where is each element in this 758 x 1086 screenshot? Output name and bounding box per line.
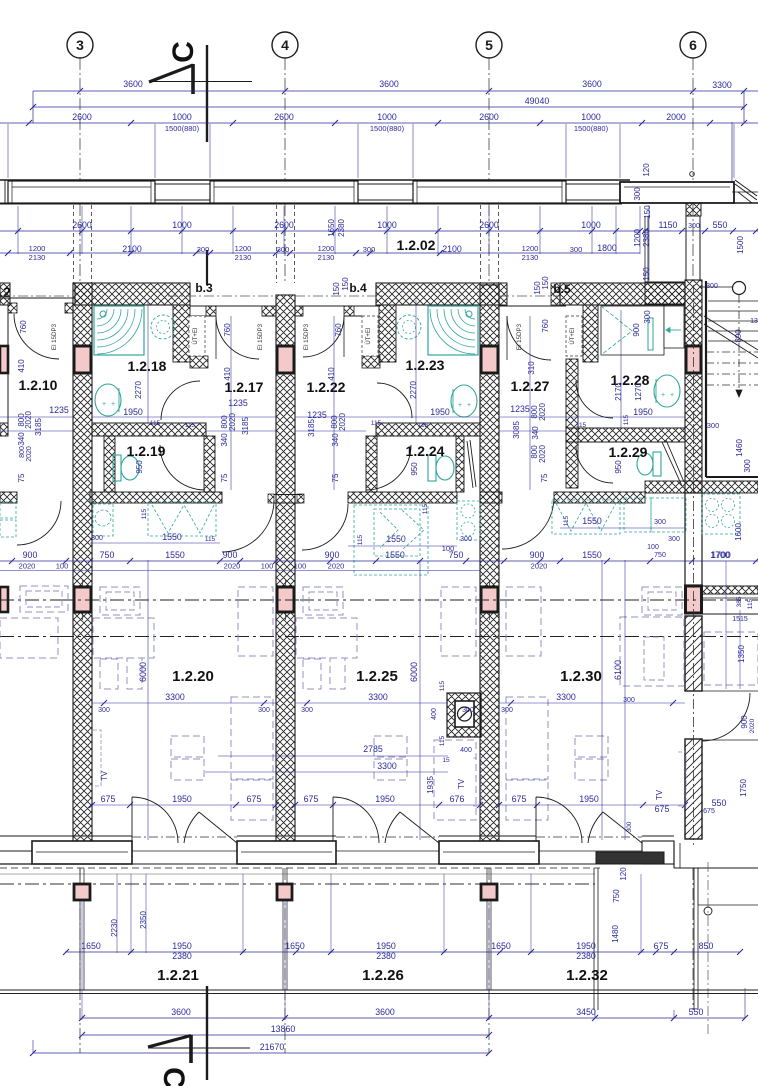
svg-text:675: 675 <box>247 794 262 804</box>
svg-text:400: 400 <box>431 708 438 720</box>
svg-text:900: 900 <box>530 550 545 560</box>
svg-text:410: 410 <box>327 367 336 381</box>
svg-text:1235: 1235 <box>49 405 69 415</box>
svg-text:115: 115 <box>185 422 196 429</box>
svg-text:410: 410 <box>223 367 232 381</box>
svg-text:b.3: b.3 <box>195 281 213 295</box>
svg-text:3085: 3085 <box>512 421 521 439</box>
svg-text:1750: 1750 <box>739 779 748 797</box>
svg-text:1000: 1000 <box>581 112 601 122</box>
svg-text:950: 950 <box>614 460 623 474</box>
svg-text:2130: 2130 <box>235 253 252 262</box>
svg-text:150: 150 <box>642 267 651 281</box>
svg-text:300: 300 <box>258 707 270 714</box>
svg-text:1550: 1550 <box>582 516 602 526</box>
svg-text:2380: 2380 <box>172 951 192 961</box>
svg-text:1500: 1500 <box>736 236 745 254</box>
svg-text:900: 900 <box>223 550 238 560</box>
svg-text:13860: 13860 <box>271 1024 296 1034</box>
svg-text:2600: 2600 <box>72 112 92 122</box>
svg-text:120: 120 <box>642 163 651 177</box>
svg-text:+: + <box>661 392 665 399</box>
svg-text:El 15DP3: El 15DP3 <box>516 323 523 350</box>
svg-text:2020: 2020 <box>26 446 33 462</box>
svg-text:100: 100 <box>56 562 69 571</box>
svg-text:410: 410 <box>17 359 26 373</box>
svg-text:890: 890 <box>734 329 743 343</box>
svg-text:1950: 1950 <box>376 941 396 951</box>
svg-text:1.2.26: 1.2.26 <box>362 967 404 984</box>
svg-text:300: 300 <box>633 187 642 201</box>
svg-text:3300: 3300 <box>368 692 388 702</box>
svg-text:75: 75 <box>331 473 340 482</box>
svg-text:115: 115 <box>422 503 429 514</box>
svg-text:100: 100 <box>261 562 274 571</box>
svg-text:ÚT+EI: ÚT+EI <box>192 327 199 345</box>
svg-text:300: 300 <box>706 283 718 290</box>
svg-text:1500(880): 1500(880) <box>165 124 200 133</box>
svg-text:1.2.24: 1.2.24 <box>406 443 445 459</box>
svg-text:+: + <box>111 401 115 408</box>
svg-text:2600: 2600 <box>479 112 499 122</box>
svg-text:2230: 2230 <box>110 919 119 937</box>
svg-text:1650: 1650 <box>285 941 305 951</box>
svg-text:1000: 1000 <box>581 220 601 230</box>
svg-text:900: 900 <box>325 550 340 560</box>
svg-text:1000: 1000 <box>172 220 192 230</box>
svg-text:1550: 1550 <box>165 550 185 560</box>
svg-text:C: C <box>157 1067 190 1086</box>
svg-text:115: 115 <box>576 422 587 429</box>
svg-text:115: 115 <box>418 422 429 429</box>
svg-text:300: 300 <box>98 707 110 714</box>
svg-text:6000: 6000 <box>409 662 419 682</box>
svg-text:115: 115 <box>357 534 364 545</box>
svg-text:115: 115 <box>563 515 570 526</box>
svg-text:El 15DP3: El 15DP3 <box>51 323 58 350</box>
svg-text:49040: 49040 <box>525 96 550 106</box>
svg-text:300: 300 <box>363 245 376 254</box>
svg-text:2020: 2020 <box>224 562 241 571</box>
svg-text:675: 675 <box>703 808 715 815</box>
svg-text:3300: 3300 <box>377 761 397 771</box>
svg-text:ÚT+EI: ÚT+EI <box>569 327 576 345</box>
svg-text:2130: 2130 <box>29 253 46 262</box>
svg-text:100: 100 <box>442 544 455 553</box>
svg-text:1200: 1200 <box>318 244 335 253</box>
svg-text:300: 300 <box>91 535 103 542</box>
svg-text:4: 4 <box>281 37 289 53</box>
svg-text:2020: 2020 <box>749 718 756 733</box>
svg-text:340: 340 <box>331 433 340 447</box>
svg-text:1350: 1350 <box>737 645 746 663</box>
svg-text:3450: 3450 <box>576 1007 596 1017</box>
svg-text:2020: 2020 <box>328 562 345 571</box>
svg-text:675: 675 <box>304 794 319 804</box>
svg-text:TV: TV <box>457 778 466 789</box>
svg-text:6100: 6100 <box>613 660 623 680</box>
svg-text:1.2.20: 1.2.20 <box>172 668 214 685</box>
svg-text:1200: 1200 <box>633 229 642 247</box>
svg-text:1950: 1950 <box>172 941 192 951</box>
svg-text:300: 300 <box>623 697 635 704</box>
svg-text:3600: 3600 <box>582 79 602 89</box>
svg-text:1235: 1235 <box>510 404 530 414</box>
svg-text:1650: 1650 <box>491 941 511 951</box>
svg-text:1950: 1950 <box>430 407 450 417</box>
svg-text:675: 675 <box>655 804 670 814</box>
svg-text:150: 150 <box>341 277 350 291</box>
svg-text:310: 310 <box>527 361 536 375</box>
svg-text:1.2.18: 1.2.18 <box>128 358 167 374</box>
svg-text:+: + <box>670 392 674 399</box>
svg-text:2130: 2130 <box>318 253 335 262</box>
svg-text:750: 750 <box>100 550 115 560</box>
svg-text:300: 300 <box>743 459 752 473</box>
svg-text:b.5: b.5 <box>553 282 571 296</box>
svg-text:TV: TV <box>100 770 109 781</box>
svg-text:100: 100 <box>647 544 659 551</box>
svg-text:115: 115 <box>747 598 754 609</box>
svg-text:2380: 2380 <box>642 229 651 247</box>
svg-text:1950: 1950 <box>633 407 653 417</box>
svg-text:3300: 3300 <box>165 692 185 702</box>
svg-text:2000: 2000 <box>666 112 686 122</box>
svg-text:3600: 3600 <box>171 1007 191 1017</box>
svg-text:1950: 1950 <box>576 941 596 951</box>
svg-text:1.2.19: 1.2.19 <box>127 443 166 459</box>
svg-text:115: 115 <box>205 536 216 543</box>
svg-text:1550: 1550 <box>582 550 602 560</box>
svg-text:1.2.02: 1.2.02 <box>397 237 436 253</box>
svg-text:+: + <box>458 402 462 409</box>
svg-text:675: 675 <box>654 941 669 951</box>
svg-text:300: 300 <box>570 245 583 254</box>
svg-text:1235: 1235 <box>307 410 327 420</box>
svg-text:3600: 3600 <box>379 79 399 89</box>
svg-text:400: 400 <box>460 747 472 754</box>
svg-text:300: 300 <box>668 536 680 543</box>
svg-text:760: 760 <box>541 319 550 333</box>
svg-text:ÚT+EI: ÚT+EI <box>365 327 372 345</box>
svg-text:150: 150 <box>541 276 550 290</box>
svg-text:1600: 1600 <box>734 523 743 541</box>
svg-text:2785: 2785 <box>363 744 383 754</box>
svg-text:1.2.21: 1.2.21 <box>157 967 199 984</box>
svg-text:2270: 2270 <box>134 381 143 399</box>
svg-text:150: 150 <box>643 205 652 219</box>
svg-text:1500(880): 1500(880) <box>370 124 405 133</box>
svg-text:15: 15 <box>442 757 450 764</box>
svg-text:675: 675 <box>101 794 116 804</box>
svg-text:550: 550 <box>712 798 727 808</box>
svg-text:2380: 2380 <box>337 219 346 237</box>
svg-text:3600: 3600 <box>375 1007 395 1017</box>
svg-text:300: 300 <box>688 223 700 230</box>
svg-text:1200: 1200 <box>29 244 46 253</box>
svg-text:2020: 2020 <box>338 413 347 431</box>
svg-text:1.2.32: 1.2.32 <box>566 967 608 984</box>
svg-text:1460: 1460 <box>735 439 744 457</box>
svg-text:2020: 2020 <box>531 562 548 571</box>
svg-text:100: 100 <box>294 562 307 571</box>
svg-text:1650: 1650 <box>81 941 101 951</box>
svg-text:+: + <box>467 402 471 409</box>
svg-text:750: 750 <box>612 889 621 903</box>
svg-text:75: 75 <box>17 473 26 482</box>
svg-text:1.2.25: 1.2.25 <box>356 668 398 685</box>
svg-text:900: 900 <box>632 323 641 337</box>
svg-text:300: 300 <box>301 707 313 714</box>
svg-text:760: 760 <box>334 323 343 337</box>
svg-text:6000: 6000 <box>138 662 148 682</box>
svg-text:2020: 2020 <box>228 413 237 431</box>
svg-text:3185: 3185 <box>241 417 250 435</box>
svg-text:TV: TV <box>655 789 664 800</box>
svg-text:1.2.23: 1.2.23 <box>406 357 445 373</box>
svg-text:800: 800 <box>19 446 26 458</box>
svg-text:1200: 1200 <box>235 244 252 253</box>
svg-text:1950: 1950 <box>123 407 143 417</box>
svg-text:385: 385 <box>736 596 743 607</box>
svg-text:2130: 2130 <box>522 253 539 262</box>
svg-text:3300: 3300 <box>556 692 576 702</box>
svg-text:2100: 2100 <box>122 244 142 254</box>
svg-text:340: 340 <box>17 432 26 446</box>
svg-text:300: 300 <box>460 536 472 543</box>
svg-text:2600: 2600 <box>72 220 92 230</box>
svg-text:1000: 1000 <box>377 220 397 230</box>
svg-text:550: 550 <box>713 220 728 230</box>
svg-text:550: 550 <box>689 1007 704 1017</box>
svg-text:115: 115 <box>623 414 630 425</box>
svg-text:1650: 1650 <box>327 219 336 237</box>
svg-text:300: 300 <box>643 310 652 324</box>
svg-text:3300: 3300 <box>712 80 732 90</box>
svg-text:1700: 1700 <box>711 550 731 560</box>
svg-text:300: 300 <box>197 245 210 254</box>
svg-text:300: 300 <box>654 519 666 526</box>
svg-text:1480: 1480 <box>611 925 620 943</box>
svg-text:300: 300 <box>707 421 720 430</box>
svg-text:300: 300 <box>277 245 290 254</box>
svg-text:760: 760 <box>223 323 232 337</box>
svg-text:1950: 1950 <box>579 794 599 804</box>
svg-text:3185: 3185 <box>34 418 43 436</box>
svg-text:1550: 1550 <box>385 550 405 560</box>
svg-text:750: 750 <box>654 552 666 559</box>
svg-text:115: 115 <box>150 420 161 427</box>
svg-text:676: 676 <box>450 794 465 804</box>
svg-text:900: 900 <box>23 550 38 560</box>
svg-text:2020: 2020 <box>24 411 33 429</box>
svg-text:1800: 1800 <box>597 243 617 253</box>
svg-text:6: 6 <box>689 37 697 53</box>
svg-text:1550: 1550 <box>386 534 406 544</box>
svg-text:1935: 1935 <box>426 776 435 794</box>
svg-text:2020: 2020 <box>538 445 547 463</box>
svg-text:13: 13 <box>750 318 758 325</box>
svg-text:2350: 2350 <box>139 911 148 929</box>
svg-text:115: 115 <box>371 420 382 427</box>
svg-text:75: 75 <box>220 473 229 482</box>
svg-text:b.4: b.4 <box>349 281 367 295</box>
svg-text:1200: 1200 <box>522 244 539 253</box>
svg-text:1270: 1270 <box>634 383 643 401</box>
svg-text:1.2.10: 1.2.10 <box>19 377 58 393</box>
svg-text:C: C <box>167 41 200 63</box>
svg-text:1000: 1000 <box>172 112 192 122</box>
svg-text:340: 340 <box>220 433 229 447</box>
svg-text:3600: 3600 <box>123 79 143 89</box>
svg-text:2170: 2170 <box>614 383 623 401</box>
svg-text:950: 950 <box>135 460 144 474</box>
svg-text:1.2.30: 1.2.30 <box>560 668 602 685</box>
svg-text:2600: 2600 <box>479 220 499 230</box>
svg-text:1950: 1950 <box>375 794 395 804</box>
svg-text:2270: 2270 <box>409 381 418 399</box>
svg-text:1950: 1950 <box>172 794 192 804</box>
svg-text:El 15DP3: El 15DP3 <box>303 323 310 350</box>
svg-text:3185: 3185 <box>307 419 316 437</box>
svg-text:El 15DP3: El 15DP3 <box>257 323 264 350</box>
svg-text:900: 900 <box>740 715 749 729</box>
svg-text:2380: 2380 <box>576 951 596 961</box>
svg-text:1150: 1150 <box>659 220 678 230</box>
svg-text:115: 115 <box>439 680 446 691</box>
svg-text:2600: 2600 <box>274 112 294 122</box>
svg-text:+: + <box>102 401 106 408</box>
svg-text:760: 760 <box>19 320 28 334</box>
svg-text:75: 75 <box>540 473 549 482</box>
svg-text:2020: 2020 <box>538 403 547 421</box>
svg-text:21670: 21670 <box>260 1042 285 1052</box>
svg-text:300: 300 <box>462 707 474 714</box>
svg-text:340: 340 <box>531 426 540 440</box>
svg-text:1000: 1000 <box>377 112 397 122</box>
svg-text:115: 115 <box>141 508 148 519</box>
svg-text:1550: 1550 <box>162 532 182 542</box>
svg-text:120: 120 <box>619 867 628 881</box>
svg-text:3: 3 <box>76 37 84 53</box>
svg-text:150: 150 <box>332 282 341 296</box>
svg-text:2100: 2100 <box>442 244 462 254</box>
svg-text:1.2.29: 1.2.29 <box>609 444 648 460</box>
svg-text:115: 115 <box>439 735 446 746</box>
svg-text:2380: 2380 <box>376 951 396 961</box>
svg-text:2600: 2600 <box>274 220 294 230</box>
svg-text:300: 300 <box>501 707 513 714</box>
svg-text:2020: 2020 <box>19 562 36 571</box>
svg-text:675: 675 <box>512 794 527 804</box>
svg-text:950: 950 <box>410 462 419 476</box>
svg-text:1500(880): 1500(880) <box>574 124 609 133</box>
svg-text:5: 5 <box>485 37 493 53</box>
svg-text:850: 850 <box>699 941 714 951</box>
